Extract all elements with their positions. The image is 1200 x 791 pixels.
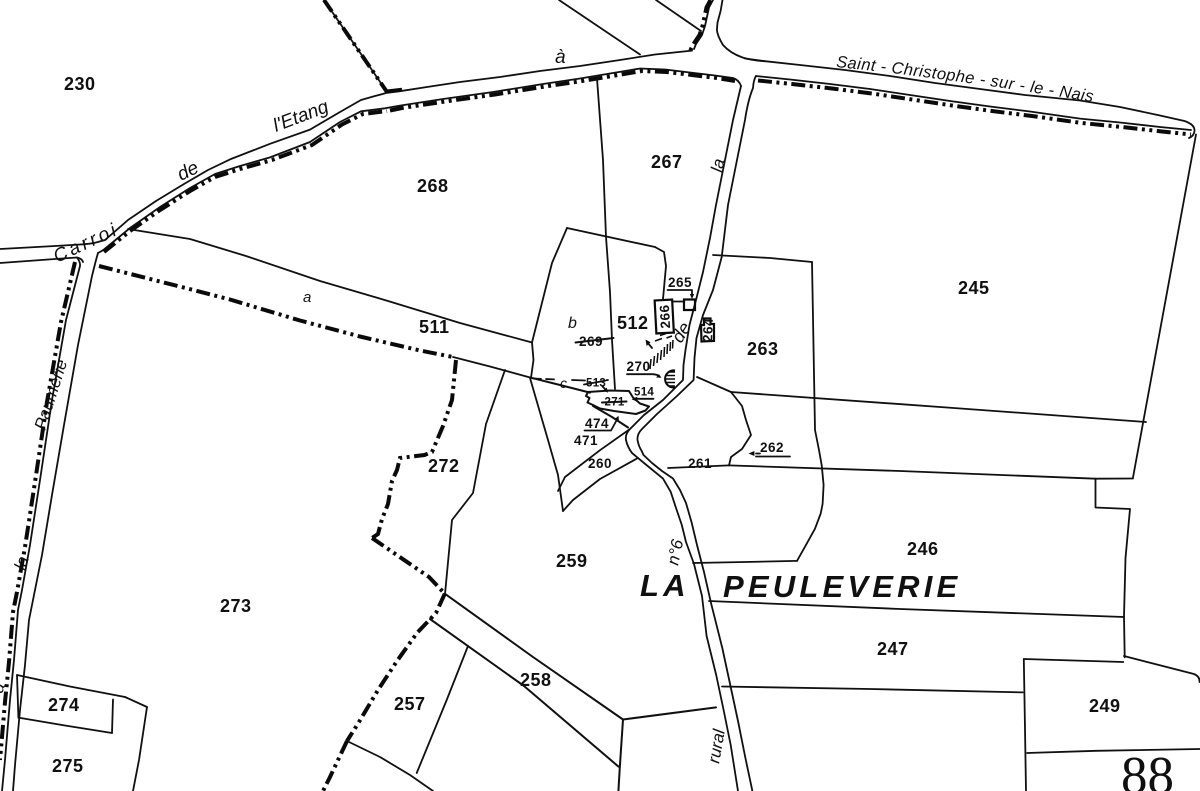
svg-text:264: 264 [700,318,716,343]
svg-text:247: 247 [877,639,909,659]
svg-text:245: 245 [958,278,990,298]
svg-text:471: 471 [574,433,598,448]
svg-text:275: 275 [52,756,84,776]
svg-text:511: 511 [419,317,450,337]
svg-text:LA: LA [640,568,690,603]
svg-text:268: 268 [417,176,449,196]
svg-text:266: 266 [657,304,673,329]
svg-text:265: 265 [668,275,692,290]
svg-text:272: 272 [428,456,460,476]
svg-text:230: 230 [64,74,96,94]
svg-text:514: 514 [634,387,654,399]
svg-text:249: 249 [1089,696,1121,716]
svg-text:246: 246 [907,539,939,559]
svg-text:259: 259 [556,551,588,571]
svg-text:512: 512 [617,313,649,333]
svg-text:261: 261 [688,456,712,471]
svg-text:PEULEVERIE: PEULEVERIE [723,569,961,604]
svg-text:260: 260 [588,456,612,471]
svg-text:à: à [555,47,566,68]
svg-text:c: c [560,375,567,391]
svg-text:257: 257 [394,694,426,714]
svg-text:270: 270 [627,359,651,374]
svg-text:a: a [303,289,311,306]
svg-text:88: 88 [1121,747,1174,791]
svg-text:262: 262 [760,440,784,455]
svg-text:474: 474 [585,416,609,431]
svg-text:273: 273 [220,596,252,616]
svg-text:263: 263 [747,339,779,359]
svg-text:258: 258 [520,670,552,690]
svg-text:b: b [568,315,577,332]
svg-text:274: 274 [48,695,80,715]
svg-text:267: 267 [651,152,683,172]
